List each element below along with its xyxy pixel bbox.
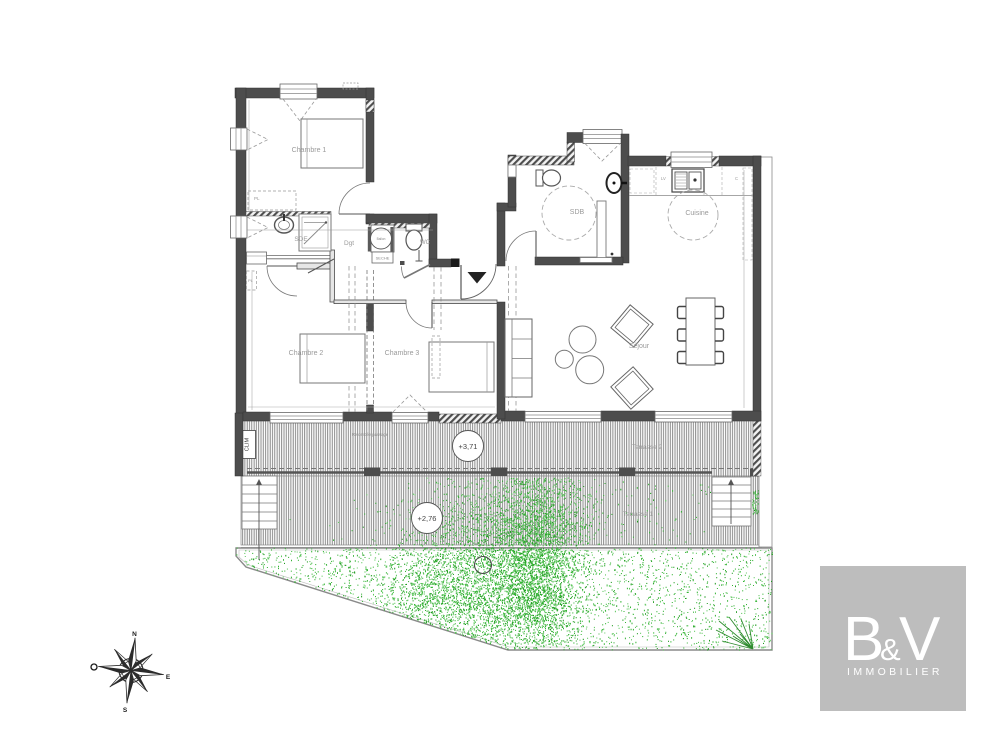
svg-text:Retombée passage: Retombée passage xyxy=(352,432,389,437)
svg-text:Terrasse 1: Terrasse 1 xyxy=(623,511,654,518)
svg-text:SDE: SDE xyxy=(294,236,308,243)
svg-text:&: & xyxy=(880,632,901,667)
svg-text:Chambre 3: Chambre 3 xyxy=(385,350,420,357)
svg-text:Cuisine: Cuisine xyxy=(685,210,708,217)
svg-text:SECHE: SECHE xyxy=(376,256,390,261)
svg-text:CLIM: CLIM xyxy=(245,437,251,451)
svg-text:N: N xyxy=(132,631,137,638)
svg-text:Chambre 1: Chambre 1 xyxy=(292,147,327,154)
svg-text:B: B xyxy=(843,605,884,674)
svg-text:PL: PL xyxy=(254,196,260,201)
svg-text:+3,71: +3,71 xyxy=(459,442,478,451)
svg-text:V: V xyxy=(899,605,941,674)
svg-text:Terrasse 2: Terrasse 2 xyxy=(632,444,663,451)
svg-text:E: E xyxy=(166,674,171,681)
svg-text:LV: LV xyxy=(661,176,666,181)
svg-text:Ballon: Ballon xyxy=(377,237,386,241)
svg-text:WC: WC xyxy=(420,240,431,246)
svg-text:SDB: SDB xyxy=(570,209,585,216)
svg-text:+2,76: +2,76 xyxy=(418,514,437,523)
svg-text:S: S xyxy=(123,707,128,714)
svg-text:Chambre 2: Chambre 2 xyxy=(289,350,324,357)
svg-text:IMMOBILIER: IMMOBILIER xyxy=(847,666,943,678)
svg-text:Séjour: Séjour xyxy=(629,343,650,350)
svg-text:PL: PL xyxy=(248,278,254,283)
svg-text:C: C xyxy=(735,176,738,181)
svg-text:Dgt: Dgt xyxy=(344,240,354,247)
